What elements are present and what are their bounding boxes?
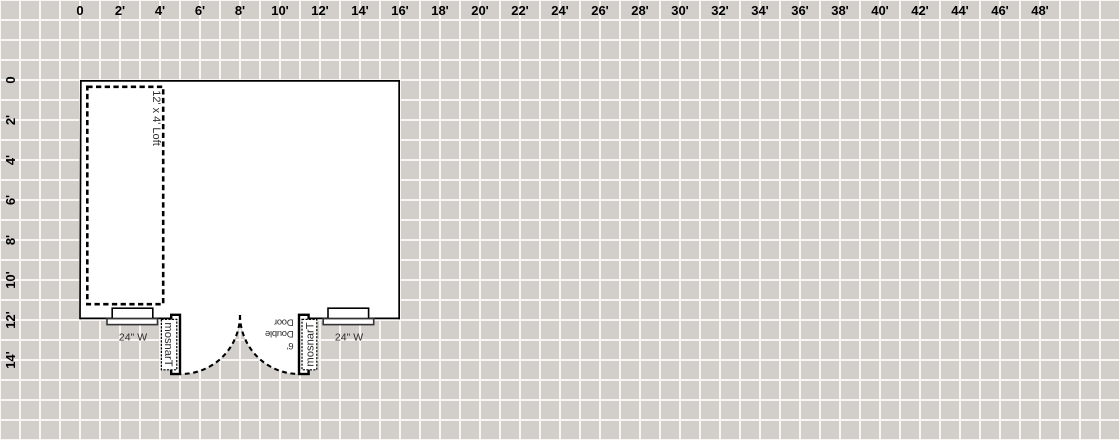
svg-text:6': 6': [3, 195, 18, 205]
svg-text:10': 10': [271, 3, 289, 18]
svg-text:34': 34': [751, 3, 769, 18]
svg-text:10': 10': [3, 271, 18, 289]
svg-text:40': 40': [871, 3, 889, 18]
svg-text:mosnarT: mosnarT: [162, 322, 174, 366]
svg-text:mosnarT: mosnarT: [304, 322, 316, 366]
svg-text:32': 32': [711, 3, 729, 18]
svg-text:12' x 4' Loft: 12' x 4' Loft: [150, 90, 162, 146]
svg-text:8': 8': [3, 235, 18, 245]
svg-text:28': 28': [631, 3, 649, 18]
svg-text:48': 48': [1031, 3, 1049, 18]
svg-text:24" W: 24" W: [119, 332, 147, 344]
svg-text:30': 30': [671, 3, 689, 18]
svg-text:14': 14': [3, 351, 18, 369]
svg-text:Door: Door: [274, 316, 294, 327]
svg-text:14': 14': [351, 3, 369, 18]
svg-text:24" W: 24" W: [335, 332, 363, 344]
svg-text:36': 36': [791, 3, 809, 18]
svg-text:6': 6': [287, 340, 294, 351]
svg-text:2': 2': [115, 3, 125, 18]
svg-text:12': 12': [311, 3, 329, 18]
svg-text:0: 0: [3, 76, 18, 83]
svg-text:6': 6': [195, 3, 205, 18]
svg-text:20': 20': [471, 3, 489, 18]
svg-text:26': 26': [591, 3, 609, 18]
svg-text:0: 0: [76, 3, 83, 18]
svg-text:8': 8': [235, 3, 245, 18]
svg-text:16': 16': [391, 3, 409, 18]
svg-text:Double: Double: [265, 328, 293, 339]
svg-text:12': 12': [3, 311, 18, 329]
svg-text:24': 24': [551, 3, 569, 18]
svg-text:42': 42': [911, 3, 929, 18]
svg-text:44': 44': [951, 3, 969, 18]
svg-text:22': 22': [511, 3, 529, 18]
svg-text:38': 38': [831, 3, 849, 18]
svg-text:46': 46': [991, 3, 1009, 18]
svg-text:4': 4': [3, 155, 18, 165]
svg-text:18': 18': [431, 3, 449, 18]
svg-text:4': 4': [155, 3, 165, 18]
svg-text:2': 2': [3, 115, 18, 125]
